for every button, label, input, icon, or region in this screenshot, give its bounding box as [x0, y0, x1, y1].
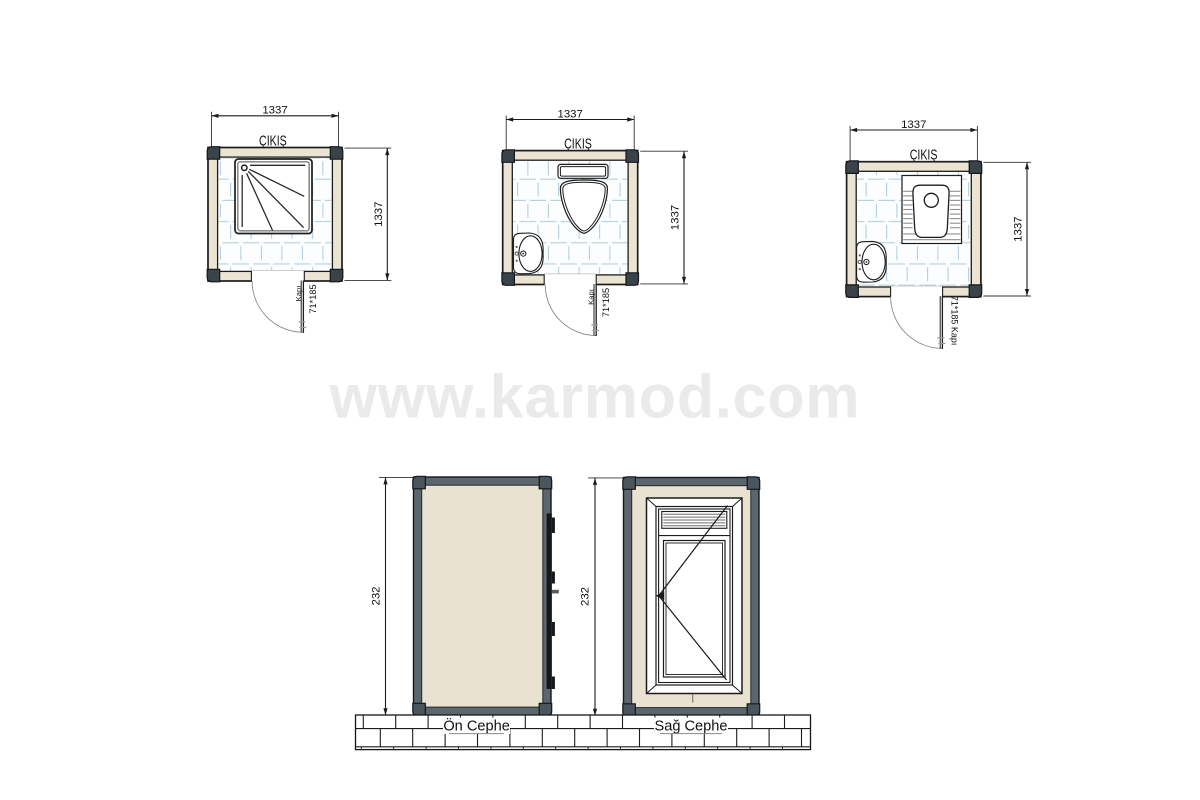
- svg-text:1337: 1337: [901, 119, 926, 131]
- svg-text:www.karmod.com: www.karmod.com: [329, 363, 861, 431]
- svg-text:1337: 1337: [1013, 216, 1025, 241]
- svg-text:1337: 1337: [558, 108, 583, 120]
- svg-text:232: 232: [371, 586, 383, 605]
- svg-text:71*185: 71*185: [308, 284, 318, 313]
- svg-text:ÇIKIŞ: ÇIKIŞ: [910, 145, 938, 162]
- svg-text:71*185: 71*185: [601, 288, 611, 317]
- svg-text:Sağ Cephe: Sağ Cephe: [654, 719, 727, 735]
- svg-text:Kapı: Kapı: [294, 286, 303, 302]
- svg-text:ÇIKIŞ: ÇIKIŞ: [564, 134, 592, 151]
- svg-text:1337: 1337: [670, 205, 682, 230]
- svg-text:1337: 1337: [373, 202, 385, 227]
- svg-text:71*185 Kapı: 71*185 Kapı: [950, 296, 960, 346]
- svg-text:Kapı: Kapı: [587, 289, 596, 305]
- svg-text:1337: 1337: [262, 105, 287, 117]
- svg-text:232: 232: [580, 587, 592, 606]
- svg-text:Ön Cephe: Ön Cephe: [443, 717, 510, 735]
- svg-text:ÇIKIŞ: ÇIKIŞ: [259, 131, 287, 148]
